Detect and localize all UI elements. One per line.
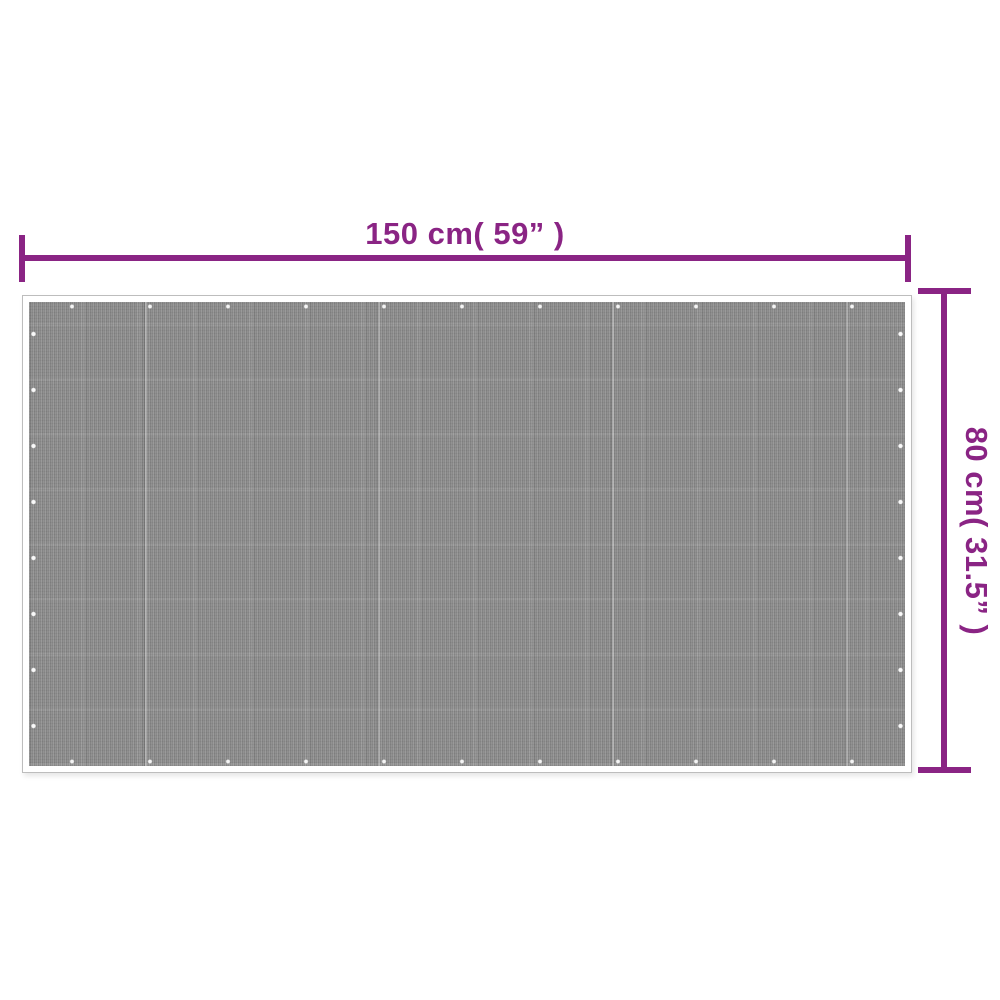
width-dimension-tick-right [905,235,911,282]
mat-stitch-dots-left [30,306,37,762]
product-mat [22,295,912,773]
width-dimension-line [22,255,908,261]
mat-stitch-dots-top [33,303,901,310]
mat-seam-line [377,302,380,766]
diagram-canvas: 150 cm( 59” ) 80 cm( 31.5” ) [0,0,1000,1000]
height-dimension-tick-bottom [918,767,971,773]
mat-seam-line [611,302,614,766]
mat-seam-line [144,302,147,766]
height-dimension-line [941,291,947,770]
height-dimension [918,288,971,773]
width-dimension [19,235,911,282]
mat-stitch-dots-bottom [33,758,901,765]
mat-woven-surface [29,302,905,766]
mat-seam-line [845,302,848,766]
mat-stitch-dots-right [897,306,904,762]
